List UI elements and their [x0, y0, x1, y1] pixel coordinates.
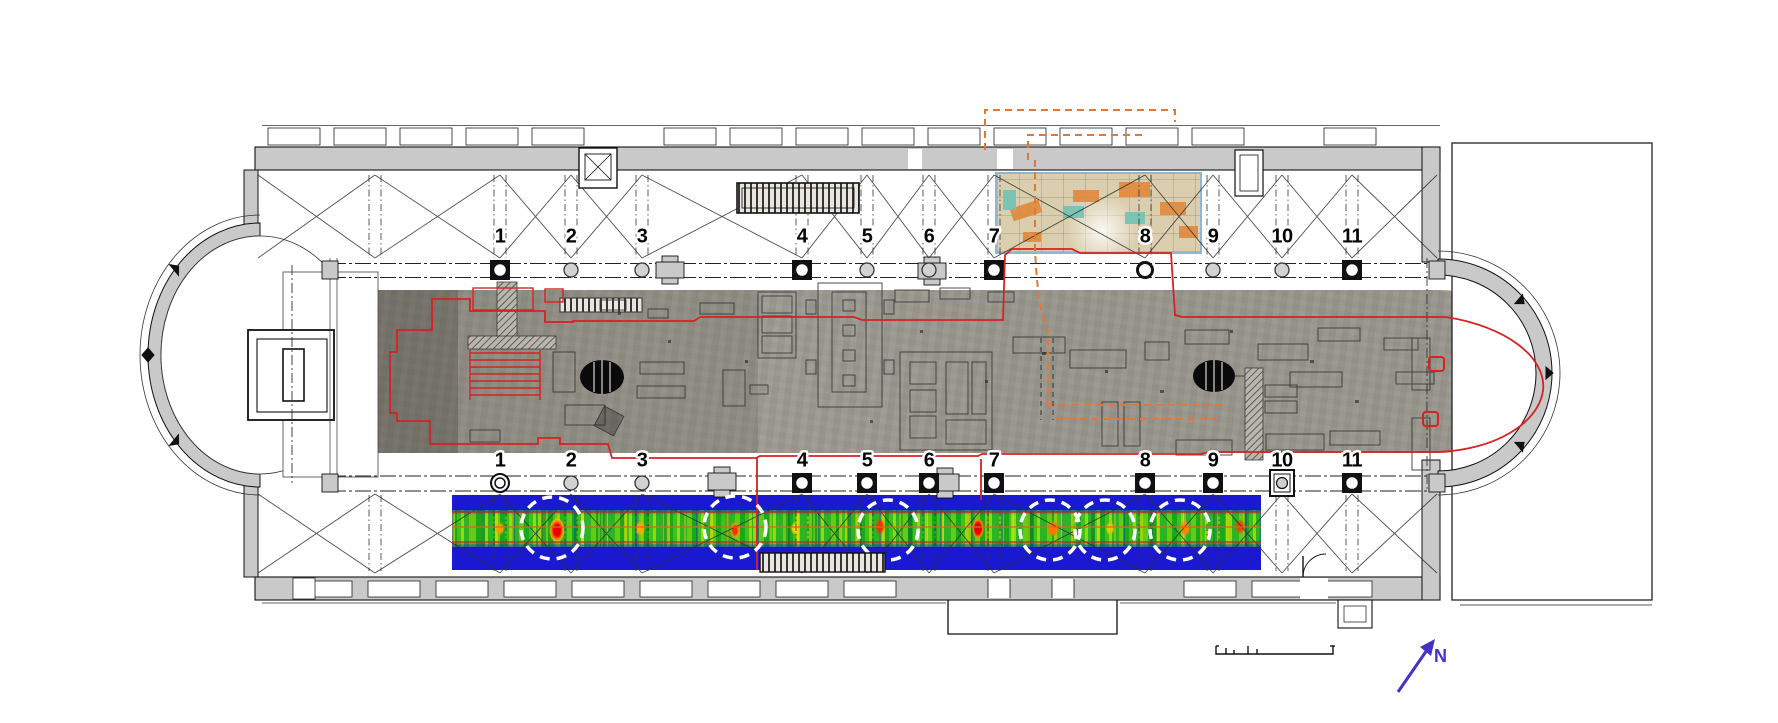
north-arrow	[1398, 639, 1435, 692]
column-label-south-9: 9	[1208, 450, 1219, 473]
column-marker-north-7	[984, 260, 1004, 280]
wall-window-slot	[776, 581, 828, 597]
wall-window-slot	[1192, 128, 1244, 145]
nave-furniture	[468, 282, 1434, 470]
column-label-south-4: 4	[797, 450, 808, 473]
wall-window-slot	[844, 581, 896, 597]
column-label-south-11: 11	[1342, 450, 1362, 473]
column-marker-north-1	[490, 260, 510, 280]
plan-linework	[0, 0, 1778, 723]
column-label-north-11: 11	[1342, 226, 1362, 249]
scale-bar	[1216, 646, 1335, 654]
column-label-north-3: 3	[637, 226, 648, 249]
column-label-north-8: 8	[1140, 226, 1151, 249]
wall-window-slot	[1324, 128, 1376, 145]
column-label-south-6: 6	[924, 450, 935, 473]
column-marker-south-8	[1135, 473, 1155, 493]
column-marker-north-2	[564, 263, 578, 277]
red-marker-square	[1423, 412, 1438, 426]
red-marker-square	[1429, 357, 1444, 371]
wall-window-slot	[640, 581, 692, 597]
column-marker-north-8	[1138, 263, 1153, 278]
floor-plan-figure: N 12345678910111234567891011	[0, 0, 1778, 723]
column-marker-south-1	[491, 474, 509, 492]
column-marker-north-10	[1275, 263, 1289, 277]
wall-window-slot	[862, 128, 914, 145]
gpr-anomaly-circle	[1020, 500, 1080, 560]
wall-window-slot	[796, 128, 848, 145]
column-label-north-9: 9	[1208, 226, 1219, 249]
wall-window-slot	[664, 128, 716, 145]
wall-window-slot	[334, 128, 386, 145]
column-label-north-10: 10	[1271, 226, 1292, 249]
pulpit-ellipse	[580, 360, 1235, 394]
wall-window-slot	[708, 581, 760, 597]
column-label-north-7: 7	[989, 226, 1000, 249]
column-marker-north-5	[860, 263, 874, 277]
column-label-south-2: 2	[566, 450, 577, 473]
column-marker-south-5	[857, 473, 877, 493]
wall-window-slot	[268, 128, 320, 145]
wall-window-slot	[368, 581, 420, 597]
wall-window-slot	[504, 581, 556, 597]
door-gap	[997, 149, 1013, 169]
column-label-south-7: 7	[989, 450, 1000, 473]
column-marker-north-9	[1206, 263, 1220, 277]
wall-window-slot	[1252, 581, 1304, 597]
gpr-anomaly-circle	[1075, 500, 1135, 560]
column-marker-south-9	[1203, 473, 1223, 493]
column-marker-south-7	[984, 473, 1004, 493]
column-label-north-6: 6	[924, 226, 935, 249]
stair-grill-north	[737, 183, 859, 213]
column-marker-north-4	[792, 260, 812, 280]
column-label-north-1: 1	[495, 226, 506, 249]
column-marker-north-11	[1342, 260, 1362, 280]
column-label-south-3: 3	[637, 450, 648, 473]
gpr-anomaly-circle	[1150, 500, 1210, 560]
column-label-north-5: 5	[862, 226, 873, 249]
gpr-anomaly-circle	[858, 500, 918, 560]
wall-window-slot	[730, 128, 782, 145]
wall-window-slot	[400, 128, 452, 145]
door-gap	[908, 149, 922, 169]
wall-window-slot	[1126, 128, 1178, 145]
column-marker-south-2	[564, 476, 578, 490]
column-label-south-10: 10	[1271, 450, 1292, 473]
wall-window-slot	[436, 581, 488, 597]
column-label-south-1: 1	[495, 450, 506, 473]
excavation-outline-red	[390, 249, 1543, 458]
column-label-north-4: 4	[797, 226, 808, 249]
wall-window-slot	[466, 128, 518, 145]
wall-window-slot	[1060, 128, 1112, 145]
column-marker-south-3	[635, 476, 649, 490]
wall-window-slot	[532, 128, 584, 145]
column-label-south-8: 8	[1140, 450, 1151, 473]
column-marker-south-4	[792, 473, 812, 493]
stair-grill-south	[760, 553, 885, 572]
wall-window-slot	[994, 128, 1046, 145]
wall-window-slot	[928, 128, 980, 145]
column-marker-south-6	[919, 473, 939, 493]
wall-window-slot	[572, 581, 624, 597]
column-marker-south-10	[1270, 470, 1294, 496]
column-marker-north-3	[635, 263, 649, 277]
column-label-north-2: 2	[566, 226, 577, 249]
column-marker-north-6	[922, 263, 936, 277]
north-label: N	[1434, 646, 1447, 667]
wall-window-slot	[1184, 581, 1236, 597]
column-label-south-5: 5	[862, 450, 873, 473]
column-marker-south-11	[1342, 473, 1362, 493]
